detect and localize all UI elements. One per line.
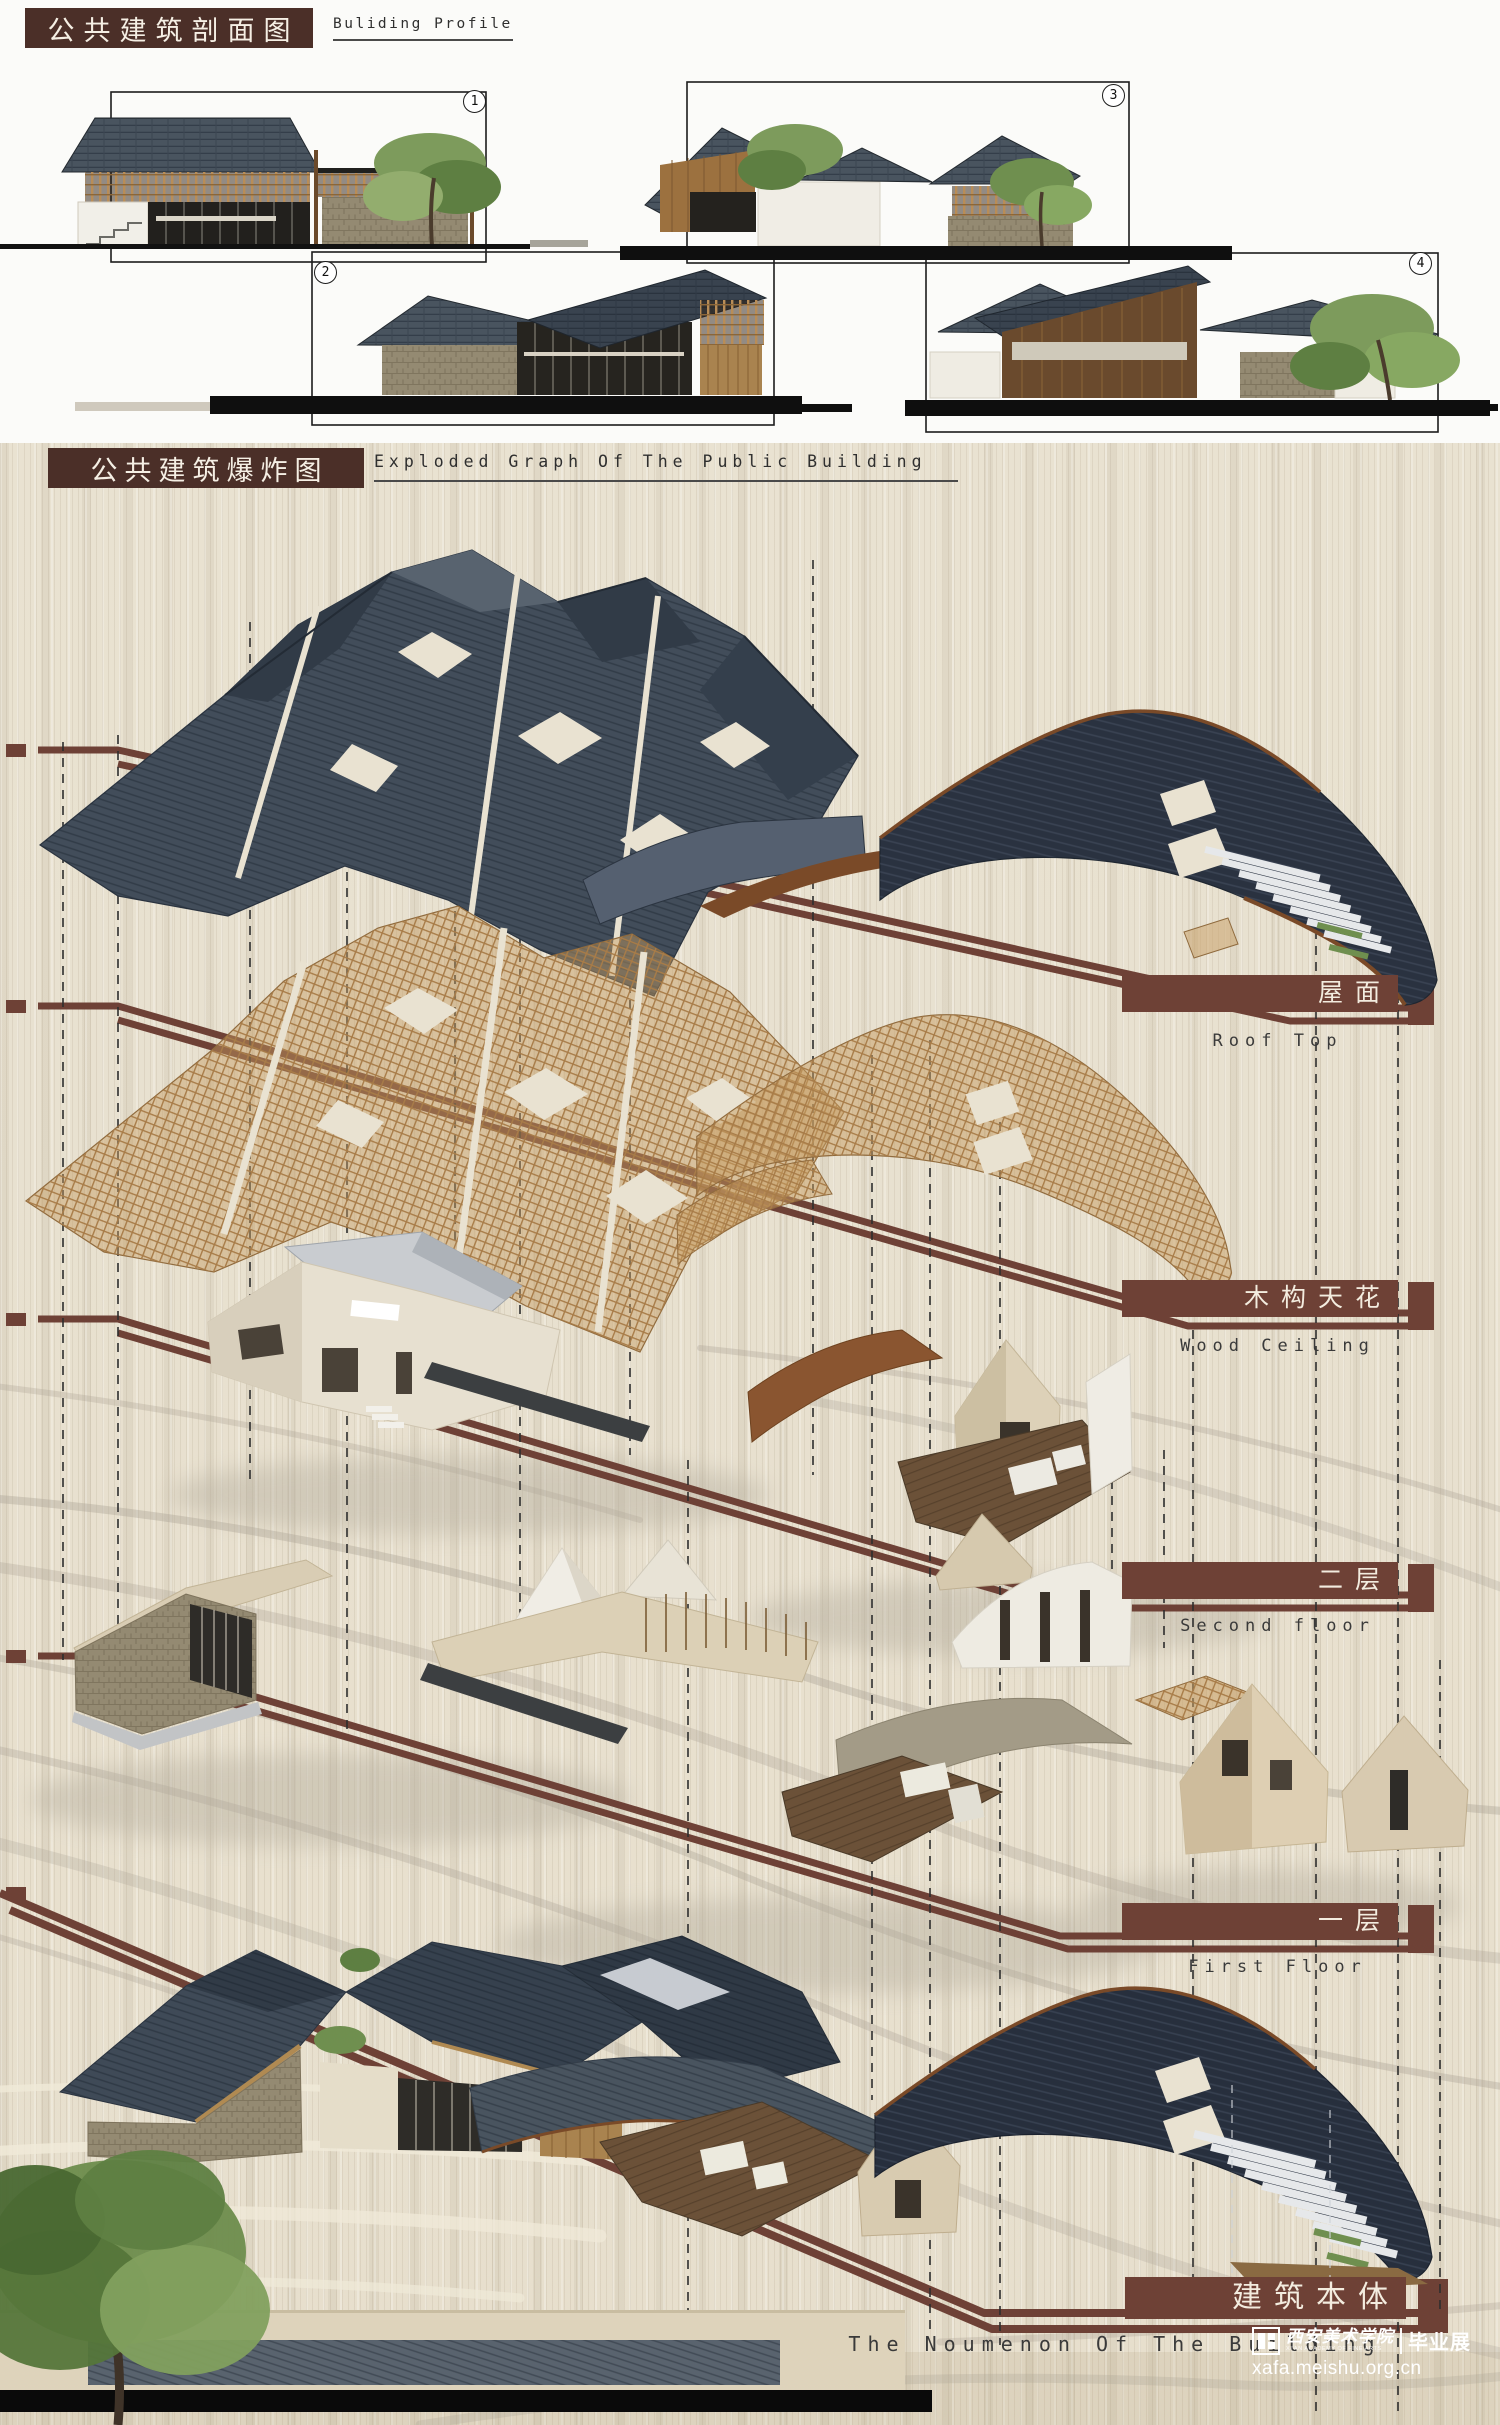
- watermark: 西安美术学院 XI'AN ACADEMY OF FINE ARTS 毕业展 xa…: [1252, 2326, 1490, 2380]
- elevation-2: [75, 270, 852, 414]
- elevation-4: [905, 266, 1498, 416]
- figure-number-1: 1: [463, 90, 486, 113]
- profile-section-title: 公共建筑剖面图: [25, 8, 313, 48]
- label-bar-building-body: 建筑本体: [1125, 2277, 1406, 2319]
- label-en-roof: Roof Top: [1122, 1031, 1433, 1051]
- label-bar-roof: 屋面: [1122, 975, 1398, 1012]
- exploded-section-title: 公共建筑爆炸图: [48, 448, 364, 488]
- ground-band: [0, 2390, 932, 2412]
- exhibition-badge: 毕业展: [1408, 2326, 1471, 2355]
- figure-number-2: 2: [314, 261, 337, 284]
- profile-title-cn: 公共建筑剖面图: [48, 9, 300, 48]
- figure-number-3: 3: [1102, 84, 1125, 107]
- profile-title-en: Buliding Profile: [333, 16, 513, 41]
- poster-page: { "sections": { "profile": { "title_cn":…: [0, 0, 1500, 2425]
- label-en-second-floor: Second floor: [1122, 1616, 1433, 1636]
- label-bar-first-floor: 一层: [1122, 1903, 1398, 1940]
- ground-mass-3: [620, 246, 1232, 260]
- label-bar-second-floor: 二层: [1122, 1562, 1398, 1599]
- poster-artwork: [0, 0, 1500, 2425]
- exploded-title-en: Exploded Graph Of The Public Building: [374, 452, 958, 482]
- leader-end-squares: [1408, 977, 1448, 2333]
- academy-seal-icon: [1252, 2327, 1280, 2355]
- ground-line-1: [0, 244, 530, 249]
- watermark-url: xafa.meishu.org.cn: [1252, 2358, 1490, 2380]
- watermark-divider: [1400, 2328, 1402, 2354]
- academy-name-cn: 西安美术学院: [1286, 2328, 1394, 2345]
- figure-number-4: 4: [1409, 252, 1432, 275]
- ground-mass-4: [905, 400, 1490, 416]
- ground-mass-2: [210, 396, 802, 414]
- leader-start-ticks: [6, 744, 26, 1900]
- label-bar-wood-ceiling: 木构天花: [1122, 1280, 1398, 1317]
- building-profiles: [0, 82, 1498, 432]
- exploded-title-cn: 公共建筑爆炸图: [91, 449, 329, 488]
- academy-name-en: XI'AN ACADEMY OF FINE ARTS: [1286, 2347, 1394, 2353]
- elevation-1: [0, 118, 588, 249]
- label-en-first-floor: First Floor: [1122, 1957, 1433, 1977]
- label-en-wood-ceiling: Wood Ceiling: [1122, 1336, 1433, 1356]
- elevation-3: [620, 124, 1232, 260]
